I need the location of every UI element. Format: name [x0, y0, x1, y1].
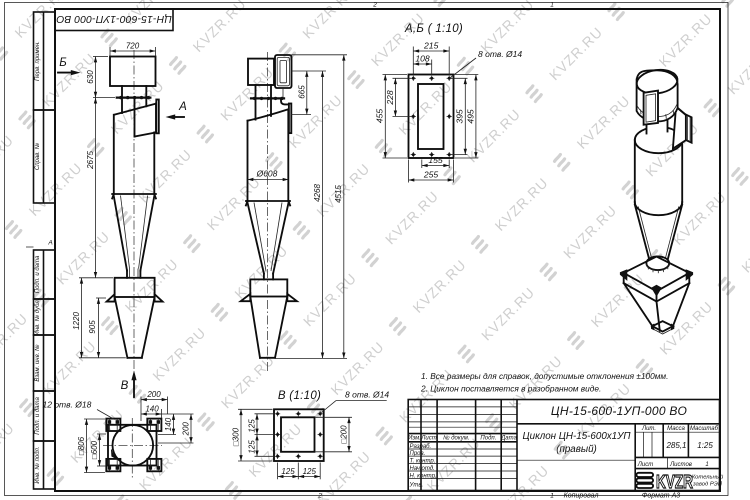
svg-text:□300: □300: [231, 427, 240, 446]
svg-text:228: 228: [385, 90, 395, 106]
svg-text:1: 1: [550, 493, 554, 500]
svg-text:Масса: Масса: [667, 426, 685, 432]
svg-text:2. Циклон поставляется в разоб: 2. Циклон поставляется в разобранном вид…: [420, 384, 601, 394]
svg-text:215: 215: [423, 41, 439, 51]
svg-text:Инв. № дубл.: Инв. № дубл.: [34, 299, 41, 336]
svg-text:125: 125: [247, 440, 256, 454]
svg-text:Ø608: Ø608: [256, 169, 278, 179]
svg-text:Разраб.: Разраб.: [410, 444, 432, 450]
svg-text:1220: 1220: [72, 312, 81, 330]
svg-text:(правый): (правый): [556, 444, 597, 455]
svg-text:455: 455: [375, 109, 385, 124]
svg-text:Копировал: Копировал: [564, 493, 599, 500]
svg-text:□200: □200: [339, 425, 348, 444]
svg-text:2: 2: [317, 493, 322, 500]
svg-text:Циклон ЦН-15-600х1УП: Циклон ЦН-15-600х1УП: [523, 431, 632, 442]
svg-text:905: 905: [88, 320, 97, 334]
svg-text:Листов: Листов: [669, 462, 692, 468]
svg-text:200: 200: [146, 390, 161, 399]
svg-text:В: В: [121, 380, 129, 392]
svg-text:□806: □806: [77, 436, 86, 455]
svg-text:2: 2: [372, 2, 377, 9]
svg-text:125: 125: [281, 467, 295, 476]
svg-text:Утв.: Утв.: [409, 483, 424, 489]
svg-text:ЦН-15-600-1УП-000 ВО: ЦН-15-600-1УП-000 ВО: [551, 404, 687, 418]
svg-text:Б: Б: [59, 57, 67, 69]
svg-text:Лит.: Лит.: [641, 426, 656, 432]
svg-text:Справ. №: Справ. №: [34, 142, 41, 170]
svg-text:Формат А3: Формат А3: [642, 493, 680, 500]
svg-text:Дата: Дата: [500, 435, 517, 441]
svg-text:Лист: Лист: [420, 435, 436, 441]
svg-text:665: 665: [297, 85, 306, 99]
svg-text:395: 395: [455, 109, 465, 124]
svg-text:4268: 4268: [313, 184, 322, 202]
svg-text:Пров.: Пров.: [410, 451, 426, 457]
svg-text:KVZR: KVZR: [656, 471, 693, 492]
svg-text:Масштаб: Масштаб: [690, 426, 719, 432]
svg-text:В (1:10): В (1:10): [278, 390, 321, 402]
svg-text:№ докум.: № докум.: [443, 434, 469, 441]
svg-text:А: А: [47, 240, 52, 247]
svg-text:12 отв. Ø18: 12 отв. Ø18: [43, 400, 92, 410]
svg-text:Подп.: Подп.: [480, 435, 496, 441]
svg-text:108: 108: [415, 54, 430, 64]
svg-text:255: 255: [423, 170, 439, 180]
svg-text:8 отв. Ø14: 8 отв. Ø14: [345, 390, 389, 400]
svg-text:200: 200: [181, 422, 190, 437]
svg-text:285,1: 285,1: [665, 441, 686, 450]
svg-text:1. Все размеры для справок, до: 1. Все размеры для справок, допустимые о…: [421, 371, 668, 381]
svg-text:Подп. и дата: Подп. и дата: [35, 397, 41, 435]
svg-text:140: 140: [164, 417, 173, 431]
svg-text:1:25: 1:25: [697, 441, 713, 450]
svg-text:8 отв. Ø14: 8 отв. Ø14: [478, 49, 522, 59]
svg-text:Подп. и дата: Подп. и дата: [35, 255, 41, 293]
svg-text:Лист: Лист: [637, 462, 653, 468]
svg-text:Т. контр.: Т. контр.: [410, 459, 436, 465]
svg-text:А,Б ( 1:10): А,Б ( 1:10): [404, 23, 463, 35]
svg-text:Инв. № подл.: Инв. № подл.: [34, 446, 41, 483]
svg-text:155: 155: [428, 155, 443, 165]
svg-text:Изм.: Изм.: [408, 435, 421, 441]
svg-text:125: 125: [303, 467, 317, 476]
svg-text:Перв. примен.: Перв. примен.: [35, 41, 41, 81]
svg-text:2675: 2675: [86, 151, 95, 170]
svg-text:□600: □600: [90, 440, 99, 459]
svg-text:Нач.отд.: Нач.отд.: [410, 466, 435, 472]
svg-text:125: 125: [247, 419, 256, 433]
svg-text:495: 495: [465, 109, 475, 124]
svg-text:1: 1: [705, 462, 708, 468]
svg-text:4515: 4515: [334, 185, 343, 203]
svg-text:Взам. инв. №: Взам. инв. №: [34, 344, 41, 382]
svg-text:630: 630: [86, 70, 95, 84]
svg-text:Н. контр.: Н. контр.: [410, 474, 437, 480]
svg-text:140: 140: [145, 405, 159, 414]
svg-text:ЦН-15-600-1УП-000 ВО: ЦН-15-600-1УП-000 ВО: [56, 13, 172, 24]
svg-text:завод РЭП: завод РЭП: [692, 482, 723, 488]
svg-text:720: 720: [126, 42, 140, 51]
svg-text:1: 1: [550, 2, 554, 9]
svg-text:А: А: [178, 101, 187, 113]
svg-text:Котельный: Котельный: [692, 474, 724, 481]
